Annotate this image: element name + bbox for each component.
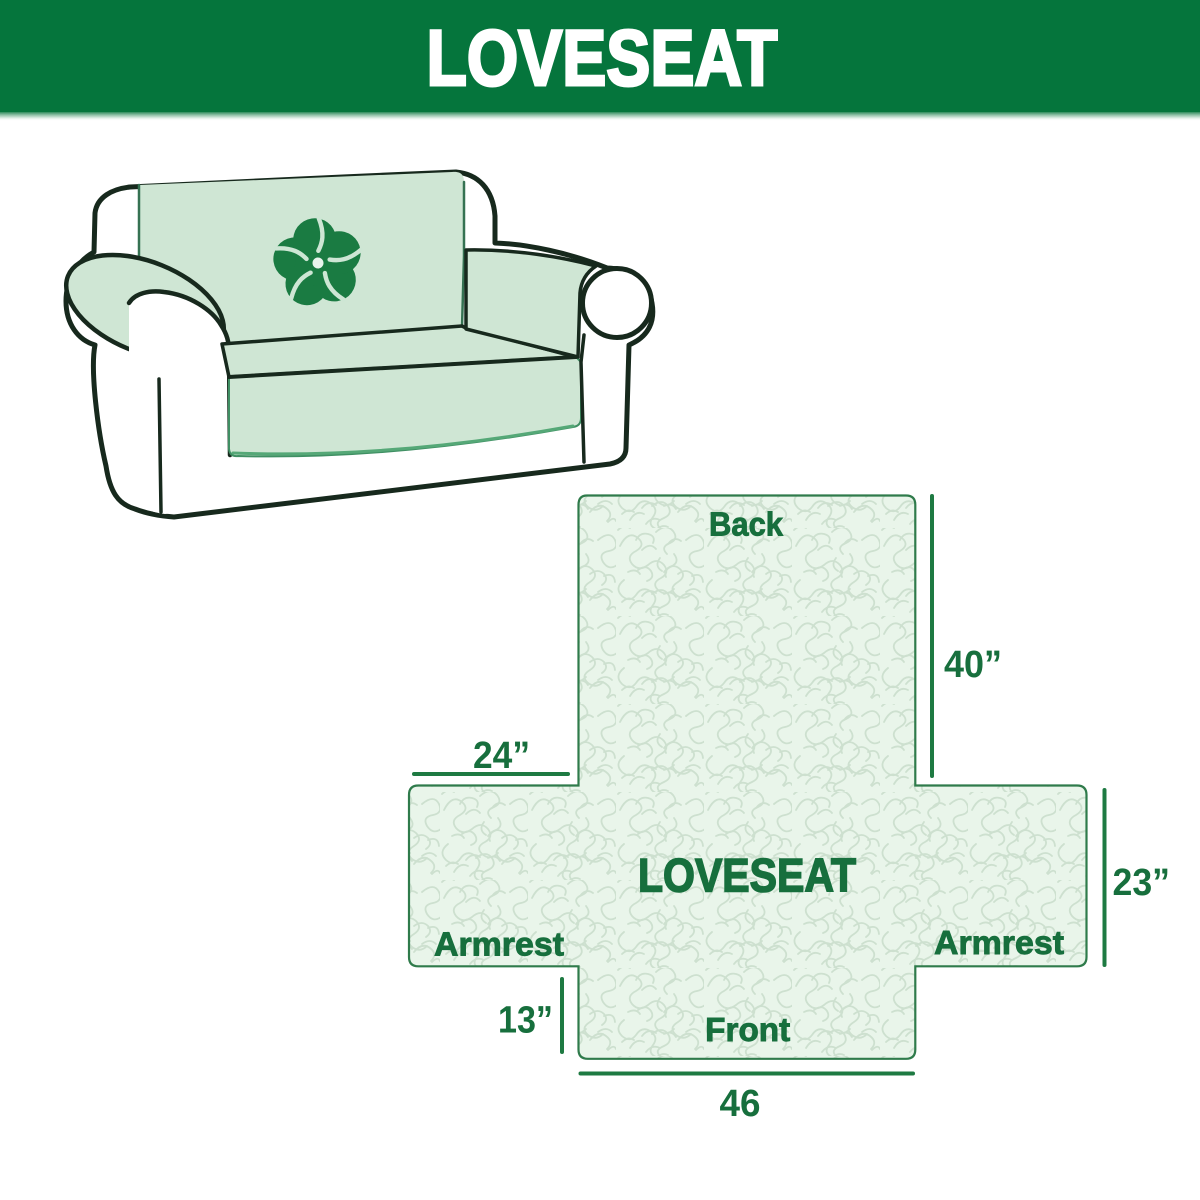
svg-text:23”: 23” — [1113, 862, 1171, 904]
svg-text:Armrest: Armrest — [434, 926, 564, 963]
svg-text:Front: Front — [705, 1011, 790, 1048]
svg-text:Armrest: Armrest — [934, 924, 1064, 961]
svg-text:LOVESEAT: LOVESEAT — [638, 849, 856, 902]
svg-text:Back: Back — [709, 506, 784, 543]
svg-text:24”: 24” — [473, 735, 530, 777]
svg-text:40”: 40” — [944, 644, 1002, 686]
svg-text:13”: 13” — [498, 1000, 553, 1042]
svg-text:LOVESEAT: LOVESEAT — [427, 13, 778, 102]
svg-text:46: 46 — [720, 1083, 761, 1125]
